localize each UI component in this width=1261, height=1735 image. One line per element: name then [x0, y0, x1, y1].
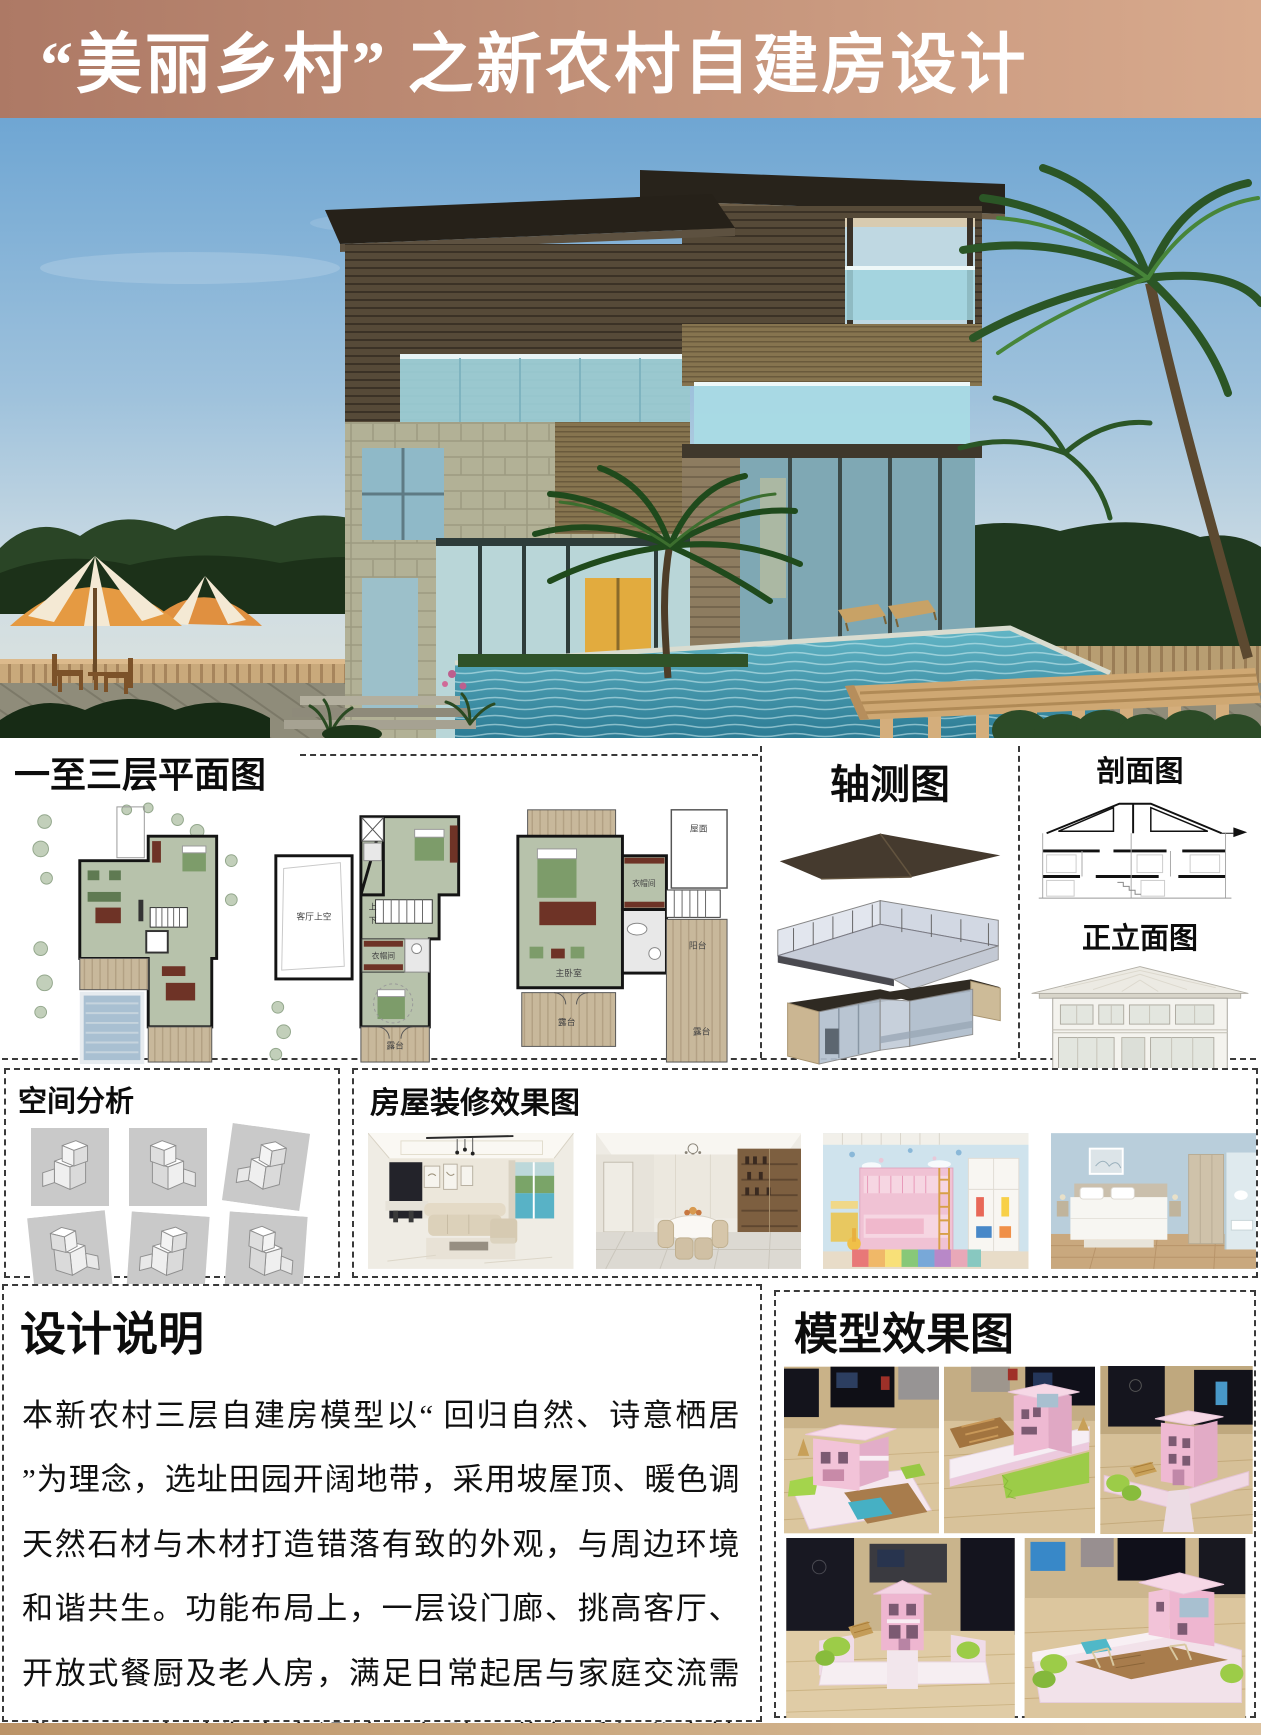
interior-photo-dining-room: [596, 1132, 802, 1270]
footer-strip: [0, 1723, 1261, 1735]
space-analysis-grid: [28, 1128, 338, 1292]
axonometric-title: 轴测图: [764, 752, 1016, 810]
section-elevation-column: 剖面图 正立面图: [1022, 744, 1258, 1056]
massing-thumbnail: [126, 1128, 210, 1206]
design-notes-title: 设计说明: [20, 1298, 760, 1364]
interiors-title: 房屋装修效果图: [370, 1078, 1256, 1122]
floor-plan-3: 主卧室 衣帽间 屋面 阳台 露台 露台: [502, 802, 738, 1064]
divider-axon-section: [1018, 746, 1020, 1058]
section-view-title: 剖面图: [1022, 748, 1258, 790]
label-closet: 衣帽间: [372, 950, 396, 960]
label-balcony: 阳台: [689, 940, 707, 951]
massing-thumbnail: [126, 1214, 210, 1292]
label-closet-3f: 衣帽间: [632, 878, 656, 888]
model-photos-row-1: [776, 1362, 1254, 1534]
elevation-title: 正立面图: [1022, 915, 1258, 957]
model-photo-4: [784, 1538, 1017, 1718]
label-void: 客厅上空: [296, 910, 331, 921]
label-master: 主卧室: [556, 967, 583, 978]
interior-renderings-section: 房屋装修效果图: [352, 1068, 1258, 1278]
space-analysis-title: 空间分析: [18, 1078, 338, 1120]
interior-photo-kids-room: [823, 1132, 1029, 1270]
massing-thumbnail: [28, 1214, 112, 1292]
hero-scene: [0, 118, 1261, 738]
models-title: 模型效果图: [794, 1298, 1254, 1362]
title-banner: “美丽乡村” 之新农村自建房设计: [0, 0, 1261, 118]
floor-plans-title: 一至三层平面图: [14, 746, 756, 798]
massing-thumbnail: [224, 1128, 308, 1206]
model-photo-2: [944, 1366, 1095, 1534]
label-roof: 屋面: [690, 823, 708, 833]
massing-thumbnail: [224, 1214, 308, 1292]
axonometric-section: 轴测图: [764, 744, 1016, 1056]
label-terrace-3f: 露台: [693, 1026, 711, 1037]
design-notes-body: 本新农村三层自建房模型以“ 回归自然、诗意栖居 ”为理念，选址田园开阔地带，采用…: [22, 1384, 740, 1735]
floor-plan-1: [18, 802, 254, 1064]
section-drawing: [1022, 790, 1258, 906]
model-photo-3: [1100, 1366, 1253, 1534]
hero-rendering: [0, 118, 1261, 738]
label-terrace: 露台: [386, 1039, 404, 1050]
poster: “美丽乡村” 之新农村自建房设计: [0, 0, 1261, 1735]
label-up: 上: [369, 903, 377, 912]
interior-photo-bedroom: [1051, 1132, 1257, 1270]
design-notes-section: 设计说明 本新农村三层自建房模型以“ 回归自然、诗意栖居 ”为理念，选址田园开阔…: [2, 1284, 762, 1722]
model-photo-1: [784, 1366, 939, 1534]
space-analysis-section: 空间分析: [4, 1068, 340, 1278]
label-down: 下: [369, 916, 377, 925]
axonometric-drawing: [764, 810, 1016, 1066]
poster-title: “美丽乡村” 之新农村自建房设计: [40, 11, 1029, 107]
divider-plans-axon: [760, 746, 762, 1058]
floor-plans-row: 客厅上空 上 下 衣帽间 露台: [8, 798, 756, 1064]
massing-thumbnail: [28, 1128, 112, 1206]
model-photos-row-2: [776, 1534, 1254, 1718]
model-photo-5: [1022, 1538, 1248, 1718]
interior-photo-living-room: [368, 1132, 574, 1270]
floor-plans-section: 一至三层平面图: [8, 744, 756, 1056]
interior-photos-row: [354, 1122, 1256, 1270]
label-terrace-3f-b: 露台: [558, 1016, 576, 1027]
model-photos-section: 模型效果图: [774, 1290, 1256, 1718]
floor-plan-2: 客厅上空 上 下 衣帽间 露台: [260, 802, 496, 1064]
